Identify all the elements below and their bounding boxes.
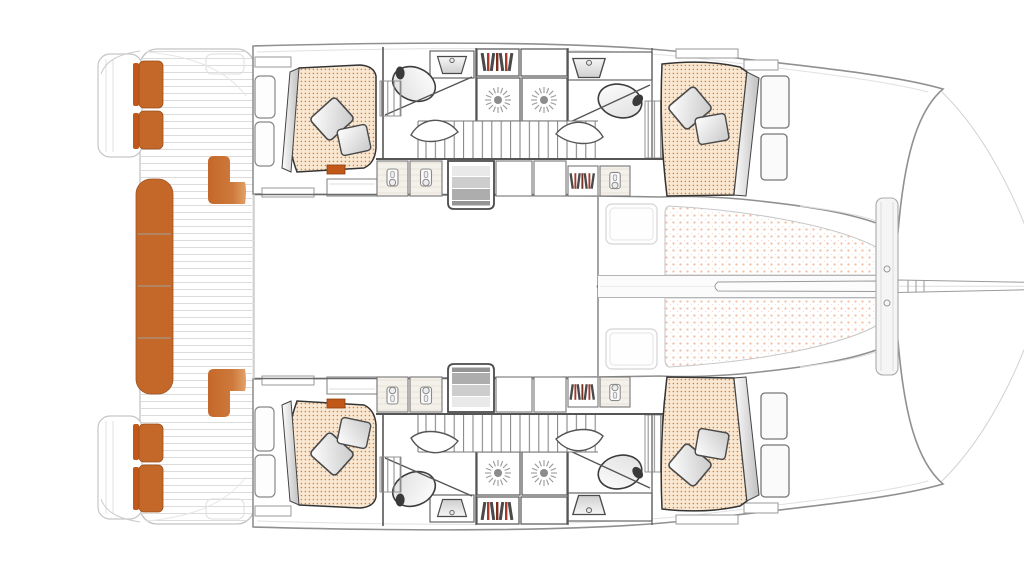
transom-seat-cushion	[139, 61, 163, 108]
bench-cushion-icon	[136, 179, 173, 394]
louver-grate	[380, 81, 401, 116]
bow-lifeline	[942, 291, 1024, 481]
side-shelf	[676, 49, 738, 58]
cabinet	[496, 161, 532, 196]
seat-backrest	[133, 113, 139, 149]
transom-seat-cushion	[139, 111, 163, 149]
cabin-seat	[262, 188, 314, 197]
side-shelf	[255, 57, 291, 67]
cabin-step	[327, 165, 345, 174]
seat-backrest	[133, 63, 139, 106]
companionway-stairs-icon	[448, 161, 494, 209]
boom-icon	[715, 281, 894, 292]
cabinet	[534, 161, 566, 196]
louver-grate	[645, 101, 662, 158]
cabin-dresser	[327, 179, 377, 196]
salon	[253, 195, 599, 378]
corridor-lockers	[377, 161, 630, 209]
trampoline-icon	[665, 206, 876, 275]
stern-bench	[136, 179, 173, 394]
side-shelf	[744, 60, 778, 70]
berth-panel	[761, 76, 789, 128]
backrest-cushion	[255, 76, 275, 118]
berth-panel	[761, 134, 787, 180]
crossbeam-icon	[876, 198, 898, 375]
bow-lifeline	[942, 92, 1024, 282]
shelf-locker	[521, 49, 567, 76]
backrest-cushion	[255, 122, 274, 166]
catamaran-floor-plan	[40, 16, 1024, 557]
shower-stalls	[477, 49, 567, 121]
bowsprit-icon	[898, 280, 1024, 293]
